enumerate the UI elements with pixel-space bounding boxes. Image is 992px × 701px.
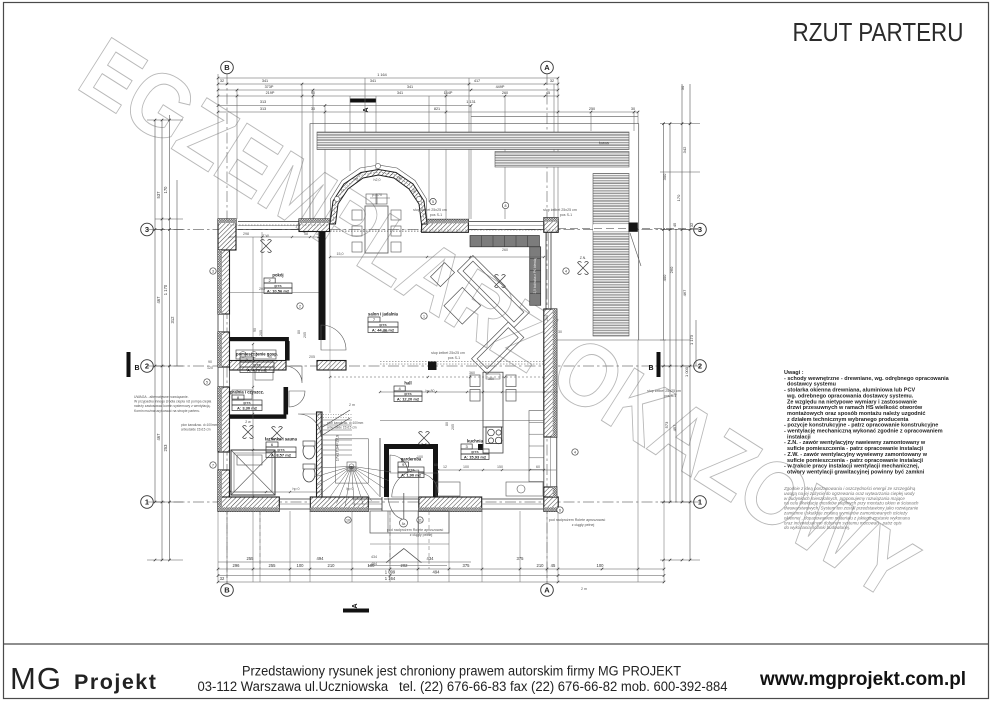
svg-text:58: 58	[304, 232, 308, 236]
svg-text:12: 12	[316, 232, 320, 236]
svg-text:4: 4	[574, 451, 576, 455]
svg-text:pos S-1: pos S-1	[560, 213, 572, 217]
svg-text:170: 170	[163, 186, 168, 194]
svg-text:pos S-1: pos S-1	[664, 394, 676, 398]
svg-text:170: 170	[676, 194, 681, 201]
svg-text:1 164: 1 164	[385, 576, 396, 581]
svg-text:467: 467	[156, 296, 161, 304]
svg-text:7: 7	[212, 464, 214, 468]
svg-text:205: 205	[309, 355, 315, 359]
svg-text:32: 32	[220, 79, 224, 83]
svg-text:A: 1,90 m2: A: 1,90 m2	[401, 472, 422, 477]
svg-text:4: 4	[565, 270, 567, 274]
svg-text:pos S-1: pos S-1	[430, 213, 442, 217]
svg-text:otwory wentylacji grawitacyjne: otwory wentylacji grawitacyjnej powinny …	[784, 469, 925, 475]
svg-text:2,5 lodówka z PK blendą: 2,5 lodówka z PK blendą	[533, 258, 537, 293]
svg-text:573: 573	[664, 421, 669, 428]
svg-text:300: 300	[662, 173, 667, 180]
svg-text:5: 5	[432, 200, 434, 204]
svg-text:494: 494	[433, 570, 441, 575]
svg-text:764: 764	[382, 330, 388, 334]
svg-text:255: 255	[269, 563, 277, 568]
svg-text:45: 45	[546, 91, 550, 95]
svg-text:60: 60	[536, 465, 540, 469]
svg-text:298: 298	[243, 232, 249, 236]
svg-text:1 164: 1 164	[377, 73, 387, 77]
svg-text:457: 457	[672, 424, 677, 431]
svg-text:słup żelbet 25x25 cm: słup żelbet 25x25 cm	[647, 389, 681, 393]
svg-text:312: 312	[170, 316, 175, 324]
svg-text:z ciągły pełnej: z ciągły pełnej	[572, 523, 595, 527]
svg-text:5: 5	[206, 381, 208, 385]
svg-text:60: 60	[434, 463, 438, 467]
svg-text:90: 90	[253, 328, 257, 332]
svg-text:W przypadku innego źródła ciep: W przypadku innego źródła ciepła niż pom…	[134, 400, 211, 404]
svg-text:Przedstawiony rysunek jest chr: Przedstawiony rysunek jest chroniony pra…	[242, 664, 681, 679]
svg-text:260: 260	[669, 266, 674, 273]
svg-text:artxudalde 15x15 cm: artxudalde 15x15 cm	[181, 427, 211, 431]
svg-text:hp 0: hp 0	[347, 487, 354, 491]
svg-text:253: 253	[163, 444, 168, 452]
svg-text:205: 205	[259, 330, 263, 336]
svg-text:313: 313	[260, 107, 266, 111]
svg-text:375: 375	[517, 556, 525, 561]
svg-text:144P: 144P	[444, 91, 453, 95]
svg-text:A: 8,57 m2: A: 8,57 m2	[271, 452, 292, 457]
svg-text:375: 375	[463, 563, 471, 568]
svg-text:plon kanalizac. d=100mm: plon kanalizac. d=100mm	[181, 423, 218, 427]
svg-text:1 099: 1 099	[385, 570, 396, 575]
svg-text:821: 821	[434, 107, 440, 111]
svg-text:A: 4,70 m2: A: 4,70 m2	[247, 367, 268, 372]
svg-text:45: 45	[672, 222, 677, 227]
svg-text:80: 80	[297, 330, 301, 334]
svg-text:2: 2	[299, 305, 301, 309]
svg-text:494: 494	[317, 556, 325, 561]
svg-text:90: 90	[268, 355, 272, 359]
svg-text:210: 210	[537, 563, 545, 568]
svg-text:494: 494	[371, 562, 377, 566]
svg-text:A: 15,93 m2: A: 15,93 m2	[464, 454, 487, 459]
svg-text:A: A	[544, 63, 550, 72]
svg-text:32: 32	[220, 576, 225, 581]
svg-text:341: 341	[262, 79, 268, 83]
svg-text:32: 32	[550, 79, 554, 83]
svg-text:2 m: 2 m	[581, 587, 587, 591]
svg-text:32: 32	[689, 222, 694, 227]
svg-text:360: 360	[469, 371, 475, 375]
svg-text:A: A	[544, 586, 550, 595]
svg-text:467: 467	[156, 433, 161, 441]
svg-text:do wykonania ścianki budowlane: do wykonania ścianki budowlanej.	[784, 525, 850, 530]
svg-text:2 m: 2 m	[349, 403, 355, 407]
svg-text:30: 30	[631, 107, 635, 111]
svg-text:260: 260	[545, 315, 549, 321]
svg-text:449P: 449P	[496, 85, 505, 89]
svg-text:203: 203	[259, 287, 265, 291]
svg-text:hp 0: hp 0	[293, 487, 300, 491]
svg-text:03-112 Warszawa ul.Uczniowska: 03-112 Warszawa ul.Uczniowska tel. (22) …	[198, 679, 728, 694]
svg-text:taras: taras	[599, 141, 610, 146]
svg-text:hp,80: hp,80	[426, 389, 435, 393]
svg-text:313: 313	[260, 100, 266, 104]
svg-text:205: 205	[451, 424, 455, 430]
svg-text:słup żelbet 25x25 cm: słup żelbet 25x25 cm	[431, 351, 465, 355]
svg-text:1 170: 1 170	[163, 284, 168, 295]
svg-text:pod nadprożem Rolete apruszowa: pod nadprożem Rolete apruszować	[549, 518, 606, 522]
svg-text:90: 90	[208, 360, 212, 364]
svg-text:salon i jadalnia: salon i jadalnia	[368, 312, 399, 317]
svg-text:341: 341	[397, 91, 403, 95]
svg-text:A: 3,30 m2: A: 3,30 m2	[237, 405, 258, 410]
svg-text:Komin można usytuować na strop: Komin można usytuować na stropie parteru…	[134, 409, 200, 413]
svg-text:pod nadprożem Rolete apruszowa: pod nadprożem Rolete apruszować	[387, 528, 444, 532]
svg-text:10: 10	[346, 519, 350, 523]
svg-text:1 131: 1 131	[466, 100, 476, 104]
svg-text:342: 342	[682, 146, 687, 153]
svg-text:434: 434	[371, 555, 377, 559]
svg-text:pos S-1: pos S-1	[448, 356, 460, 360]
svg-text:A: A	[352, 603, 359, 608]
svg-text:467: 467	[682, 289, 687, 296]
svg-text:hall: hall	[404, 381, 411, 386]
svg-text:artxudalde 15x15 cm: artxudalde 15x15 cm	[327, 425, 357, 429]
svg-text:pokój: pokój	[272, 273, 283, 278]
svg-text:100: 100	[297, 563, 305, 568]
svg-text:3: 3	[212, 270, 214, 274]
svg-text:Z.W.: Z.W.	[262, 234, 269, 238]
svg-text:pralnia i czyszcz.: pralnia i czyszcz.	[230, 390, 264, 395]
svg-text:B: B	[648, 365, 653, 372]
svg-text:45: 45	[551, 563, 556, 568]
svg-text:słup żelbet 25x25 cm: słup żelbet 25x25 cm	[543, 208, 577, 212]
svg-text:360: 360	[488, 377, 494, 381]
svg-text:260: 260	[502, 248, 508, 252]
svg-text:B: B	[224, 586, 230, 595]
svg-text:400: 400	[662, 274, 667, 281]
svg-text:100: 100	[597, 563, 605, 568]
svg-text:1 000: 1 000	[684, 366, 689, 377]
svg-text:z ciągły pełnej: z ciągły pełnej	[410, 533, 433, 537]
svg-text:80: 80	[445, 422, 449, 426]
svg-text:B: B	[224, 63, 230, 72]
svg-text:Z.N.: Z.N.	[580, 256, 587, 260]
svg-text:6: 6	[559, 509, 561, 513]
svg-text:Projekt: Projekt	[74, 670, 157, 694]
svg-text:1 173: 1 173	[689, 334, 694, 345]
svg-text:417: 417	[474, 79, 480, 83]
svg-text:A: 12,20 m2: A: 12,20 m2	[397, 396, 420, 401]
svg-text:296: 296	[233, 563, 241, 568]
svg-text:205: 205	[303, 332, 307, 338]
svg-text:słup żelbet 25x25 cm: słup żelbet 25x25 cm	[413, 208, 447, 212]
svg-text:15,0: 15,0	[337, 252, 344, 256]
svg-text:h2,0: h2,0	[374, 178, 381, 182]
svg-text:www.mgprojekt.com.pl: www.mgprojekt.com.pl	[759, 669, 966, 690]
svg-text:30: 30	[558, 330, 562, 334]
svg-text:150: 150	[497, 465, 503, 469]
svg-text:210: 210	[328, 563, 336, 568]
svg-text:537: 537	[156, 191, 161, 199]
svg-text:8a: 8a	[402, 522, 406, 526]
svg-text:plon kanalizac. d=100mm: plon kanalizac. d=100mm	[327, 421, 364, 425]
svg-text:RZUT PARTERU: RZUT PARTERU	[793, 19, 964, 47]
svg-text:UWAGA - alternatywne rozwiązan: UWAGA - alternatywne rozwiązanie.	[134, 395, 189, 399]
svg-text:należy zastosować komin system: należy zastosować komin systemowy z went…	[134, 404, 211, 408]
svg-text:B: B	[134, 365, 139, 372]
svg-text:100: 100	[417, 455, 423, 459]
svg-text:8: 8	[505, 204, 507, 208]
svg-text:p=170: p=170	[372, 193, 382, 197]
svg-text:434: 434	[427, 556, 435, 561]
svg-text:250: 250	[589, 107, 595, 111]
svg-text:30: 30	[680, 85, 685, 90]
svg-text:12: 12	[443, 465, 447, 469]
svg-text:120: 120	[207, 366, 213, 370]
svg-text:100: 100	[463, 465, 469, 469]
svg-text:341: 341	[407, 85, 413, 89]
svg-text:373P: 373P	[265, 85, 274, 89]
svg-text:1: 1	[423, 315, 425, 319]
svg-text:17x17,94=27,9: 17x17,94=27,9	[335, 434, 340, 461]
svg-text:219P: 219P	[266, 91, 275, 95]
svg-text:kuchnia: kuchnia	[467, 439, 483, 444]
svg-text:341: 341	[370, 79, 376, 83]
svg-text:MG: MG	[10, 661, 62, 696]
svg-text:260: 260	[502, 91, 508, 95]
svg-text:2 w: 2 w	[245, 420, 251, 424]
